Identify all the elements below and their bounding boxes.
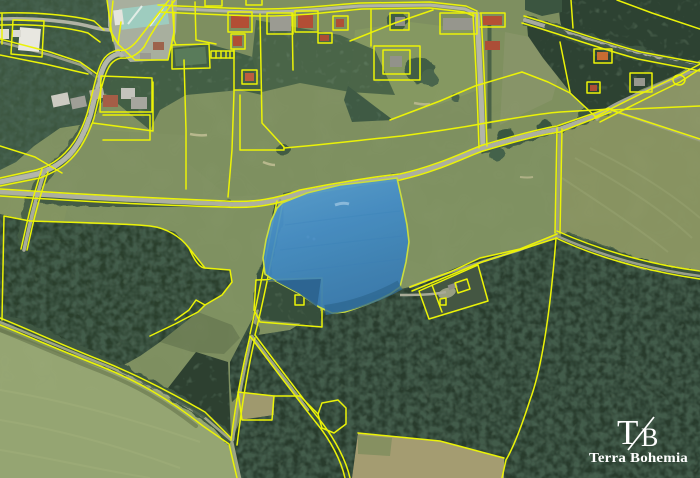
- svg-text:Terra Bohemia: Terra Bohemia: [589, 451, 688, 466]
- svg-text:T: T: [617, 413, 638, 452]
- svg-text:B: B: [641, 423, 658, 452]
